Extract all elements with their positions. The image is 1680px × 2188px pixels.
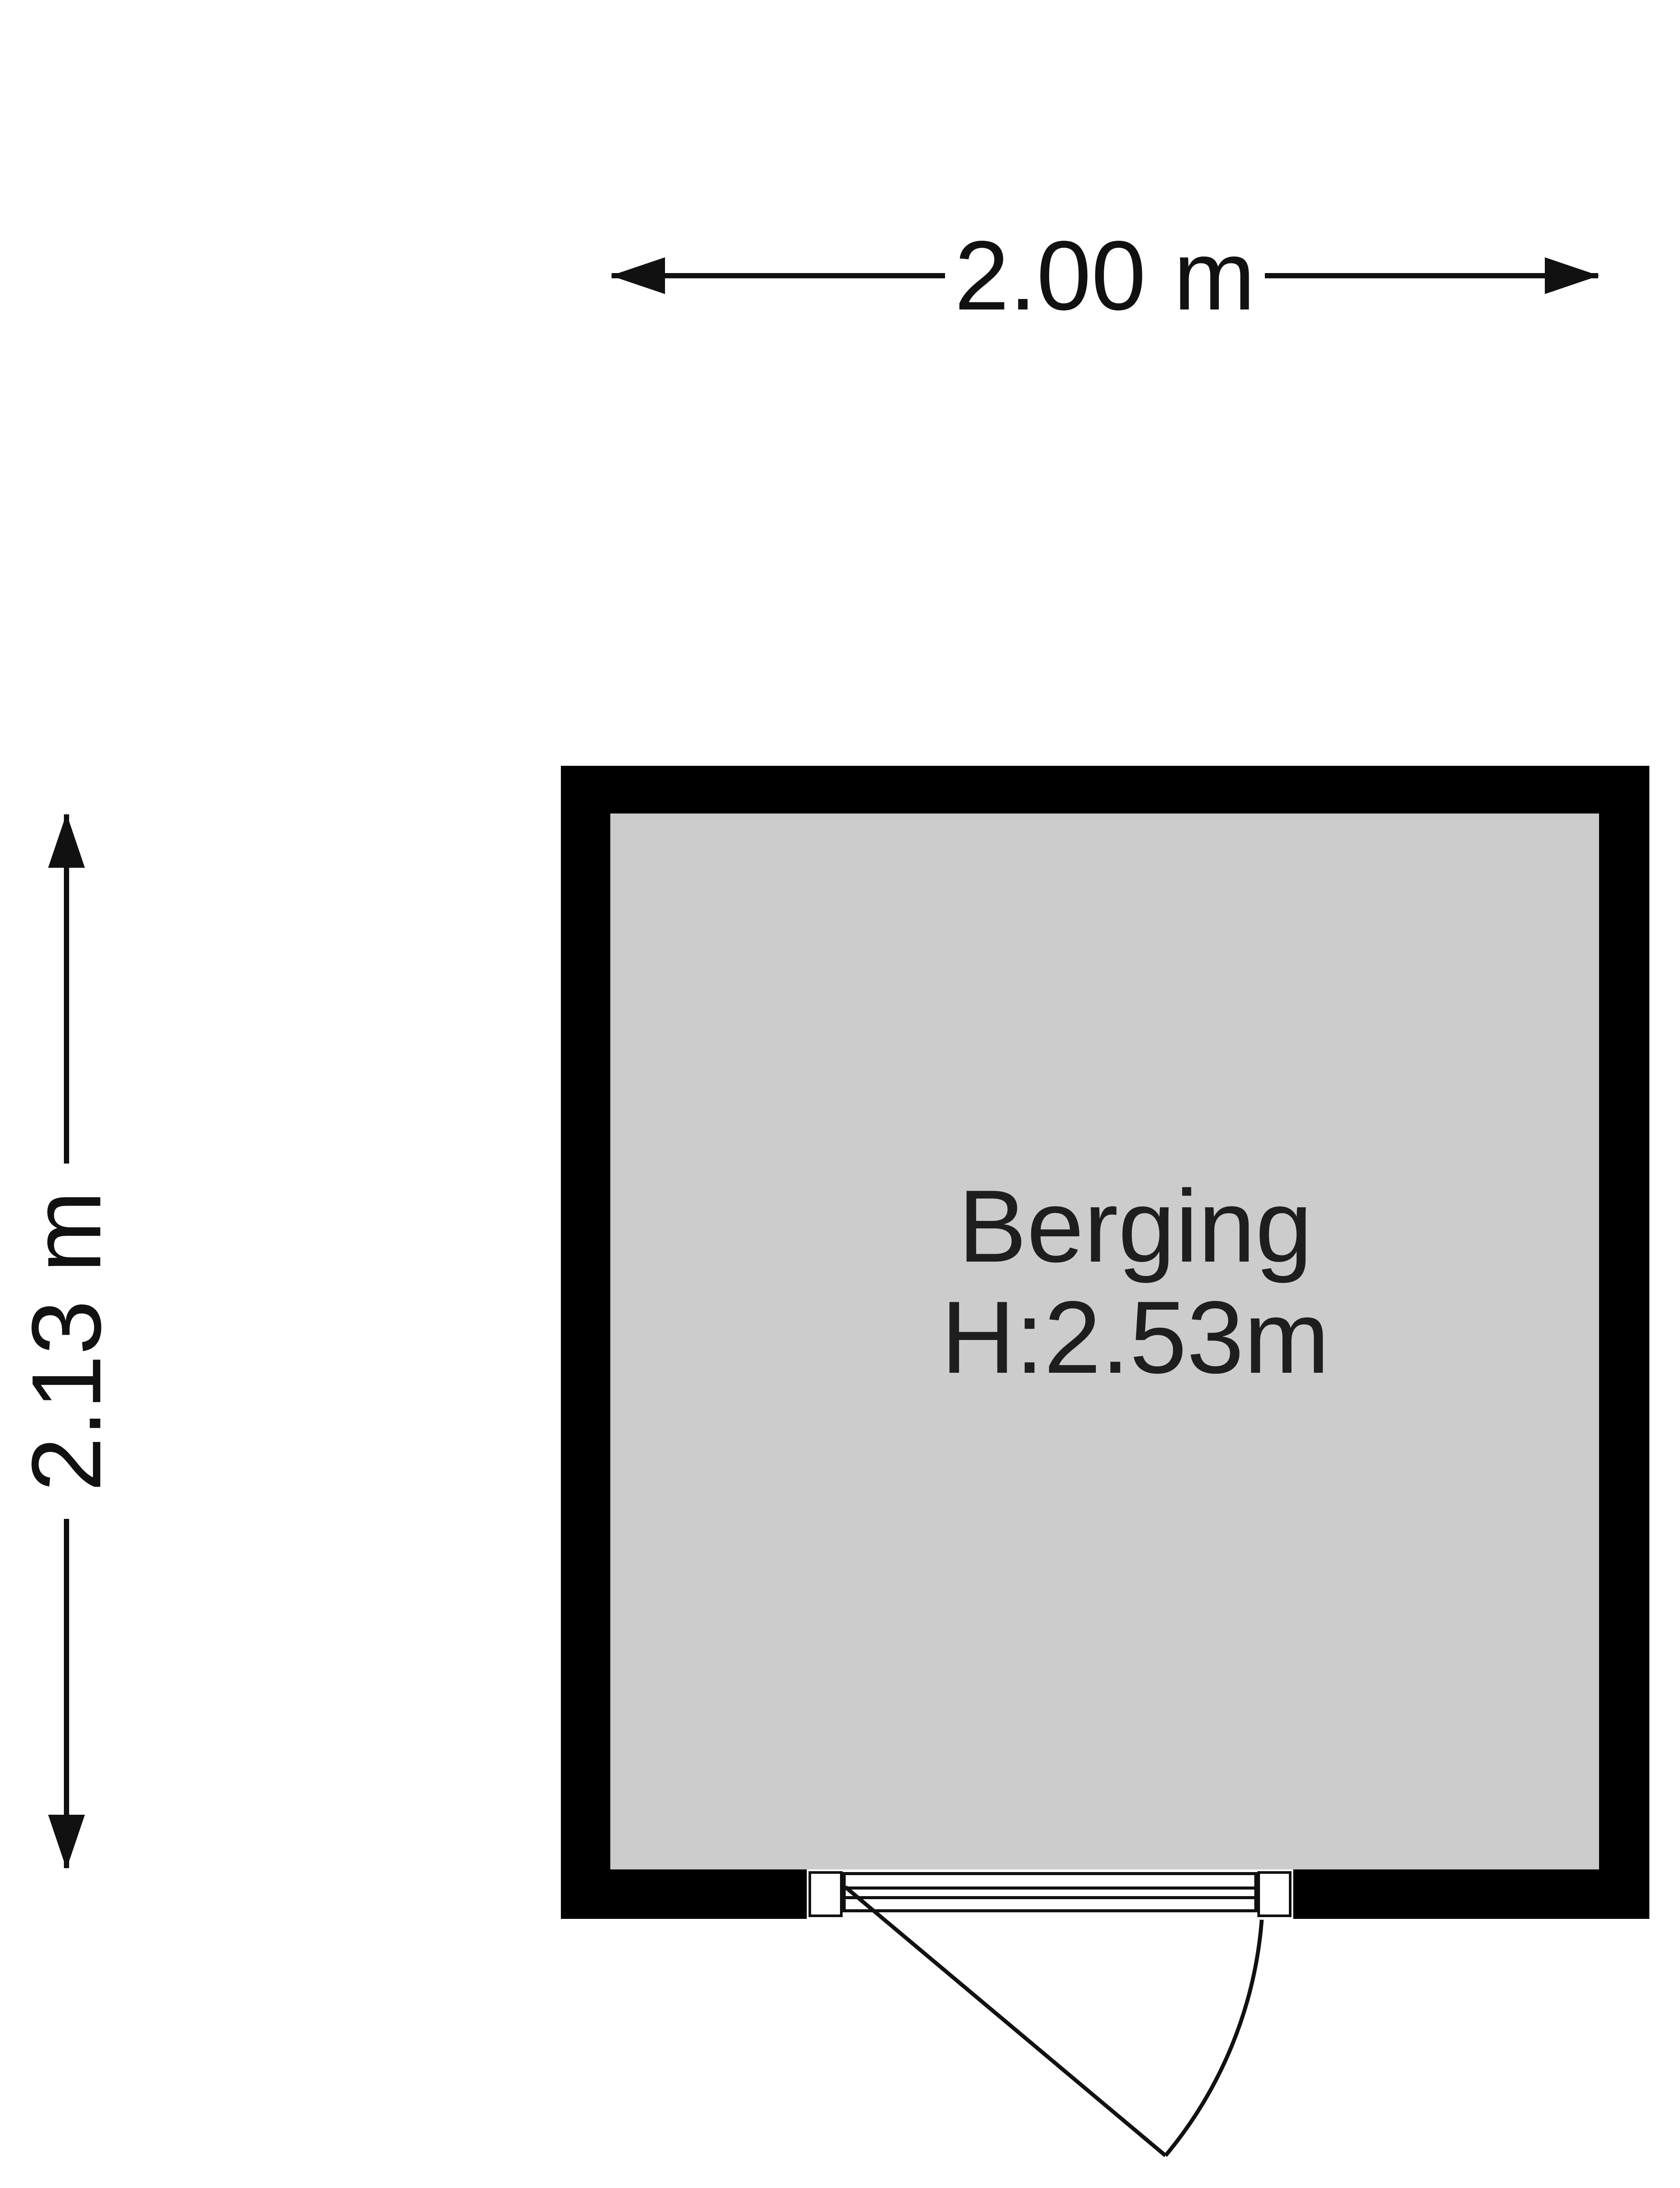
room-name-label: Berging — [941, 1171, 1330, 1282]
width-dimension: 2.00 m — [611, 221, 1599, 330]
arrow-down-icon — [48, 1815, 85, 1869]
arrow-up-icon — [48, 813, 85, 868]
door-leaf-open-line — [845, 1887, 1165, 2156]
depth-dimension: 2.13 m — [12, 813, 121, 1869]
width-dimension-label: 2.00 m — [945, 221, 1265, 330]
floorplan-canvas: 2.00 m 2.13 m Berging H:2.53m — [0, 0, 1680, 2188]
door-swing-arc — [1165, 1920, 1262, 2156]
arrow-right-icon — [1545, 257, 1599, 294]
door-jamb-left — [808, 1871, 843, 1917]
door-jamb-right — [1257, 1871, 1291, 1917]
door-leaf-panel-line — [846, 1886, 1254, 1890]
arrow-left-icon — [611, 257, 665, 294]
room-ceiling-height-label: H:2.53m — [941, 1282, 1330, 1393]
door-leaf-panel-line — [846, 1896, 1254, 1899]
room-label: Berging H:2.53m — [941, 1171, 1330, 1393]
door-leaf-closed — [843, 1872, 1257, 1912]
depth-dimension-label: 2.13 m — [12, 1164, 121, 1519]
